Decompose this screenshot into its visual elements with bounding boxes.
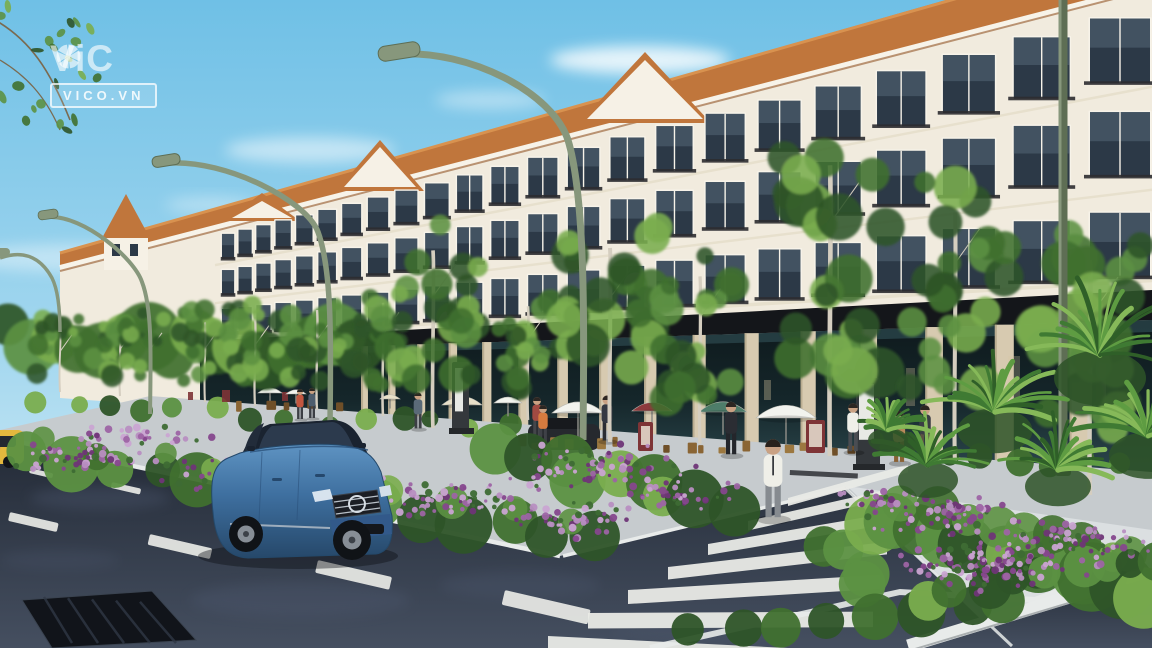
flower-cluster — [702, 497, 709, 504]
tree-foliage-blob — [269, 342, 285, 358]
flower-cluster — [624, 517, 629, 522]
person-leg — [313, 405, 315, 418]
flower-cluster — [1049, 539, 1053, 543]
flower-cluster — [588, 501, 592, 505]
flower-cluster — [159, 478, 164, 483]
person-tie — [772, 456, 774, 476]
flower-cluster — [873, 527, 877, 531]
flower-cluster — [845, 503, 849, 507]
lamp-head — [0, 248, 10, 256]
tree-foliage-blob — [177, 374, 190, 387]
balcony-railing — [237, 254, 253, 258]
planter-edge-hedge — [761, 608, 801, 648]
balcony-railing — [565, 187, 602, 191]
window-sheen — [425, 233, 448, 248]
building-base-hedge — [71, 396, 88, 413]
distant-awning — [222, 390, 230, 402]
window-sheen — [342, 248, 361, 262]
tree-foliage-blob — [118, 353, 135, 370]
flower-cluster — [617, 441, 624, 448]
flower-cluster — [537, 465, 544, 472]
building-base-hedge — [162, 398, 182, 418]
flower-cluster — [421, 497, 426, 502]
flower-cluster — [587, 468, 590, 471]
building-base-hedge — [1006, 448, 1034, 476]
flower-cluster — [469, 508, 476, 515]
flower-cluster — [210, 459, 213, 462]
flower-cluster — [659, 487, 667, 495]
flower-cluster — [904, 505, 908, 509]
flower-cluster — [105, 425, 113, 433]
flower-cluster — [1094, 555, 1100, 561]
flower-cluster — [94, 433, 100, 439]
flower-cluster — [30, 441, 37, 448]
flower-cluster — [472, 504, 476, 508]
flower-cluster — [137, 451, 142, 456]
tree-foliage-blob — [866, 208, 904, 246]
window-sheen — [318, 210, 335, 223]
flower-cluster — [557, 523, 560, 526]
flower-cluster — [629, 475, 632, 478]
flower-cluster — [409, 490, 417, 498]
balcony-railing — [525, 195, 560, 199]
tree-foliage-blob — [634, 218, 670, 254]
flower-cluster — [538, 442, 545, 449]
tree-foliage-blob — [968, 238, 989, 259]
flower-cluster — [459, 484, 466, 491]
flower-cluster — [956, 503, 962, 509]
flower-cluster — [525, 513, 532, 520]
tree-foliage-blob — [280, 304, 302, 326]
flower-cluster — [563, 456, 568, 461]
flower-cluster — [553, 474, 556, 477]
flower-cluster — [946, 503, 954, 511]
flower-cluster — [1079, 541, 1085, 547]
planter-edge-hedge — [852, 593, 899, 640]
flower-cluster — [163, 461, 170, 468]
flower-cluster — [609, 464, 615, 470]
flower-cluster — [696, 497, 701, 502]
person-leg — [301, 406, 303, 419]
flower-cluster — [194, 438, 198, 442]
flower-cluster — [672, 484, 678, 490]
flower-cluster — [646, 466, 652, 472]
flower-cluster — [1019, 575, 1025, 581]
flower-cluster — [1055, 538, 1059, 542]
flower-cluster — [976, 545, 982, 551]
pilaster-shade — [482, 342, 484, 429]
flower-cluster — [1022, 536, 1029, 543]
flower-cluster — [682, 493, 687, 498]
flower-cluster — [582, 505, 589, 512]
flower-cluster — [54, 458, 59, 463]
balcony-railing — [755, 297, 805, 301]
flower-cluster — [408, 482, 412, 486]
flower-cluster — [183, 436, 189, 442]
flower-cluster — [186, 466, 190, 470]
flower-cluster — [74, 456, 78, 460]
flower-cluster — [969, 553, 975, 559]
flower-cluster — [198, 485, 203, 490]
umbrella-shade — [259, 393, 281, 396]
flower-cluster — [629, 482, 637, 490]
person-torso — [847, 412, 859, 432]
flower-cluster — [973, 521, 981, 529]
flower-cluster — [983, 573, 988, 578]
flower-cluster — [929, 521, 934, 526]
tree-foliage-blob — [286, 337, 311, 362]
balcony-railing — [255, 288, 272, 292]
person-torso — [725, 412, 738, 434]
flower-cluster — [432, 509, 436, 513]
flower-cluster — [1084, 572, 1089, 577]
flower-cluster — [207, 472, 211, 476]
tree-foliage-blob — [391, 286, 408, 303]
balcony-railing — [938, 111, 1000, 115]
flower-cluster — [1062, 520, 1069, 527]
flower-cluster — [459, 500, 462, 503]
tree-foliage-blob — [202, 361, 216, 375]
flower-cluster — [1122, 529, 1126, 533]
tree-foliage-blob — [664, 372, 696, 404]
flower-cluster — [1069, 522, 1077, 530]
flower-cluster — [47, 446, 52, 451]
umbrella-shade — [759, 415, 813, 422]
flower-cluster — [1025, 544, 1030, 549]
flower-cluster — [1079, 557, 1085, 563]
flower-cluster — [682, 498, 689, 505]
flower-cluster — [125, 426, 133, 434]
tree-foliage-blob — [354, 313, 367, 326]
tree-foliage-blob — [68, 327, 78, 337]
flower-cluster — [991, 566, 999, 574]
flower-cluster — [676, 480, 680, 484]
cafe-chair — [785, 445, 794, 453]
flower-cluster — [627, 491, 634, 498]
flower-cluster — [573, 470, 577, 474]
storefront-pilaster — [745, 333, 759, 451]
flower-cluster — [976, 495, 981, 500]
tree-foliage-blob — [929, 205, 963, 239]
flower-cluster — [870, 501, 877, 508]
flower-cluster — [1128, 549, 1135, 556]
flower-cluster — [41, 450, 45, 454]
tree-foliage-blob — [614, 350, 648, 384]
flower-cluster — [575, 511, 582, 518]
balcony-railing — [221, 293, 236, 297]
tree-foliage-blob — [781, 155, 821, 195]
totem-base — [449, 428, 474, 434]
flower-cluster — [626, 466, 633, 473]
cafe-chair — [832, 448, 838, 456]
flower-cluster — [727, 497, 731, 501]
balcony-railing — [872, 124, 930, 128]
flower-cluster — [1101, 552, 1105, 556]
flower-cluster — [699, 507, 703, 511]
flower-cluster — [1010, 517, 1017, 524]
cafe-chair — [284, 402, 290, 410]
flower-cluster — [883, 494, 888, 499]
tree-foliage-blob — [291, 365, 306, 380]
flower-cluster — [542, 512, 550, 520]
flower-cluster — [935, 516, 940, 521]
tree-foliage-blob — [911, 264, 944, 297]
flower-cluster — [971, 581, 976, 586]
flower-cluster — [94, 444, 98, 448]
menu-board-panel — [641, 426, 650, 445]
balcony-railing — [295, 242, 314, 246]
flower-cluster — [1013, 534, 1017, 538]
tree-foliage-blob — [194, 299, 214, 319]
flower-cluster — [966, 505, 972, 511]
window-sheen — [368, 198, 388, 212]
car-headlight — [379, 485, 392, 497]
flower-cluster — [982, 558, 986, 562]
flower-cluster — [1016, 561, 1022, 567]
person-leg — [732, 432, 736, 454]
balcony-railing — [295, 283, 314, 287]
cafe-chair — [742, 441, 750, 452]
flower-cluster — [492, 505, 497, 510]
tree-foliage-blob — [422, 338, 446, 362]
flower-cluster — [470, 490, 477, 497]
flower-cluster — [1017, 550, 1025, 558]
flower-cluster — [114, 460, 121, 467]
flower-cluster — [859, 502, 865, 508]
aperture-icon — [52, 40, 85, 73]
flower-cluster — [946, 552, 951, 557]
shop-interior-glint — [764, 380, 771, 400]
flower-cluster — [558, 455, 562, 459]
flower-cluster — [977, 588, 983, 594]
flower-cluster — [864, 490, 871, 497]
flower-cluster — [974, 528, 980, 534]
flower-cluster — [609, 514, 617, 522]
flower-cluster — [604, 529, 609, 534]
cafe-chair — [236, 401, 242, 412]
tree-foliage-blob — [816, 193, 863, 240]
flower-cluster — [1146, 549, 1150, 553]
tree-foliage-blob — [823, 336, 852, 365]
flower-cluster — [613, 507, 618, 512]
flower-cluster — [995, 545, 1001, 551]
flower-cluster — [569, 524, 577, 532]
flower-cluster — [653, 484, 659, 490]
flower-cluster — [607, 451, 611, 455]
flower-cluster — [190, 464, 196, 470]
flower-cluster — [403, 503, 406, 506]
flower-cluster — [946, 581, 952, 587]
flower-cluster — [641, 496, 645, 500]
flower-cluster — [1073, 541, 1078, 546]
flower-cluster — [166, 433, 170, 437]
flower-cluster — [626, 453, 634, 461]
person-leg — [415, 413, 418, 428]
flower-cluster — [39, 455, 47, 463]
flower-cluster — [1049, 553, 1055, 559]
flower-cluster — [1030, 539, 1036, 545]
tree-foliage-blob — [506, 366, 530, 390]
flower-cluster — [1110, 544, 1116, 550]
scene-canvas — [0, 0, 1152, 648]
window-sheen — [256, 225, 270, 237]
flower-cluster — [421, 481, 428, 488]
umbrella-shade — [555, 411, 602, 417]
cafe-chair — [266, 401, 276, 410]
flower-cluster — [966, 574, 972, 580]
distant-awning — [188, 392, 193, 400]
flower-cluster — [519, 523, 522, 526]
watermark-domain-badge: VICO.VN — [50, 83, 157, 108]
flower-cluster — [983, 566, 990, 573]
flower-cluster — [1097, 560, 1105, 568]
flower-cluster — [977, 550, 984, 557]
cafe-chair — [336, 402, 343, 411]
tree-foliage-blob — [897, 307, 927, 337]
flower-cluster — [1004, 529, 1011, 536]
tree-foliage-blob — [918, 355, 950, 387]
flower-cluster — [587, 453, 592, 458]
flower-cluster — [202, 478, 208, 484]
flower-cluster — [573, 535, 580, 542]
car-mirror — [358, 443, 366, 448]
tree-foliage-blob — [717, 369, 744, 396]
flower-cluster — [1007, 542, 1011, 546]
flower-cluster — [646, 493, 649, 496]
flower-cluster — [148, 436, 152, 440]
balcony-railing — [489, 315, 521, 319]
flower-cluster — [663, 455, 669, 461]
flower-cluster — [959, 529, 963, 533]
flower-cluster — [665, 493, 671, 499]
flower-cluster — [675, 500, 681, 506]
flower-cluster — [893, 500, 901, 508]
tree-foliage-blob — [665, 340, 697, 372]
flower-cluster — [91, 453, 99, 461]
tree-foliage-blob — [546, 301, 582, 337]
tree-foliage-blob — [719, 272, 743, 296]
flower-cluster — [675, 493, 681, 499]
flower-cluster — [145, 430, 150, 435]
flower-cluster — [1095, 534, 1100, 539]
tree-foliage-blob — [310, 371, 330, 391]
flower-cluster — [870, 490, 874, 494]
flower-cluster — [569, 484, 573, 488]
car-mirror — [247, 446, 255, 451]
flower-cluster — [837, 491, 843, 497]
person-leg — [765, 485, 771, 518]
tree-foliage-blob — [120, 317, 132, 329]
building-base-hedge — [355, 408, 377, 430]
flower-cluster — [554, 509, 561, 516]
balcony-railing — [702, 159, 749, 163]
planter-edge-hedge — [671, 613, 703, 645]
flower-cluster — [13, 463, 19, 469]
flower-cluster — [734, 483, 740, 489]
balcony-railing — [237, 291, 253, 295]
flower-cluster — [123, 436, 130, 443]
flower-cluster — [1016, 546, 1021, 551]
flower-cluster — [941, 571, 947, 577]
flower-cluster — [509, 477, 512, 480]
tree-foliage-blob — [661, 276, 679, 294]
flower-cluster — [597, 517, 603, 523]
palm-base-mass — [958, 408, 1033, 453]
flower-cluster — [578, 448, 585, 455]
window-sheen — [276, 260, 291, 272]
flower-cluster — [915, 546, 922, 553]
flower-cluster — [664, 480, 669, 485]
flower-cluster — [1075, 533, 1081, 539]
flower-cluster — [449, 505, 453, 509]
flower-cluster — [1060, 567, 1065, 572]
flower-cluster — [507, 495, 514, 502]
tree-foliage-blob — [914, 172, 935, 193]
flower-cluster — [880, 488, 887, 495]
balcony-railing — [702, 227, 749, 231]
balcony-railing — [340, 233, 363, 237]
flower-cluster — [183, 472, 189, 478]
flower-cluster — [162, 424, 168, 430]
person-torso — [414, 399, 423, 414]
flower-cluster — [936, 547, 942, 553]
window-sheen — [342, 204, 361, 218]
car-wheel-hub — [243, 531, 249, 537]
flower-cluster — [544, 452, 548, 456]
person-leg — [726, 432, 730, 454]
balcony-railing — [1084, 175, 1152, 179]
flower-cluster — [1052, 544, 1059, 551]
flower-cluster — [102, 446, 106, 450]
totem-base — [853, 464, 885, 470]
flower-cluster — [590, 471, 596, 477]
flower-cluster — [454, 486, 458, 490]
tree-foliage-blob — [97, 337, 113, 353]
flower-cluster — [671, 463, 676, 468]
balcony-railing — [489, 202, 521, 206]
tree-foliage-blob — [404, 249, 431, 276]
flower-cluster — [57, 450, 62, 455]
flower-cluster — [138, 433, 144, 439]
tree-foliage-blob — [223, 340, 238, 355]
turret-window — [130, 244, 138, 256]
flower-cluster — [86, 455, 91, 460]
flower-cluster — [1043, 562, 1048, 567]
person-shadow — [889, 461, 911, 467]
flower-cluster — [967, 563, 974, 570]
flower-cluster — [934, 506, 941, 513]
balcony-railing — [274, 286, 292, 290]
balcony-railing — [221, 257, 236, 261]
flower-cluster — [473, 496, 477, 500]
flower-cluster — [460, 507, 465, 512]
tree-foliage-blob — [35, 320, 49, 334]
flower-cluster — [1028, 554, 1033, 559]
flower-cluster — [547, 521, 553, 527]
flower-cluster — [553, 517, 557, 521]
car-door-handle — [315, 474, 325, 477]
person-leg — [419, 413, 422, 428]
pilaster-shade — [745, 333, 747, 448]
tree-foliage-blob — [392, 311, 413, 332]
tree-foliage-blob — [896, 374, 922, 400]
menu-board-panel — [809, 424, 822, 447]
flower-cluster — [976, 504, 984, 512]
tree-foliage-blob — [934, 166, 977, 209]
flower-cluster — [597, 461, 604, 468]
balcony-railing — [366, 227, 390, 231]
flower-cluster — [1120, 544, 1128, 552]
